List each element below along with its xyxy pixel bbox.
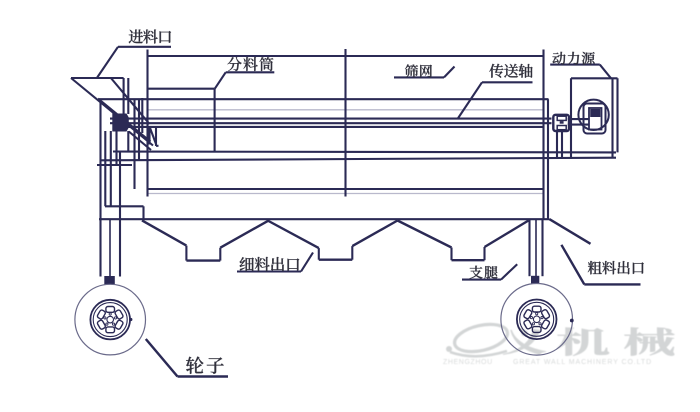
svg-text:ZHENGZHOU: ZHENGZHOU [443, 359, 493, 366]
svg-text:GREAT WALL MACHINERY CO.LTD: GREAT WALL MACHINERY CO.LTD [513, 359, 652, 366]
